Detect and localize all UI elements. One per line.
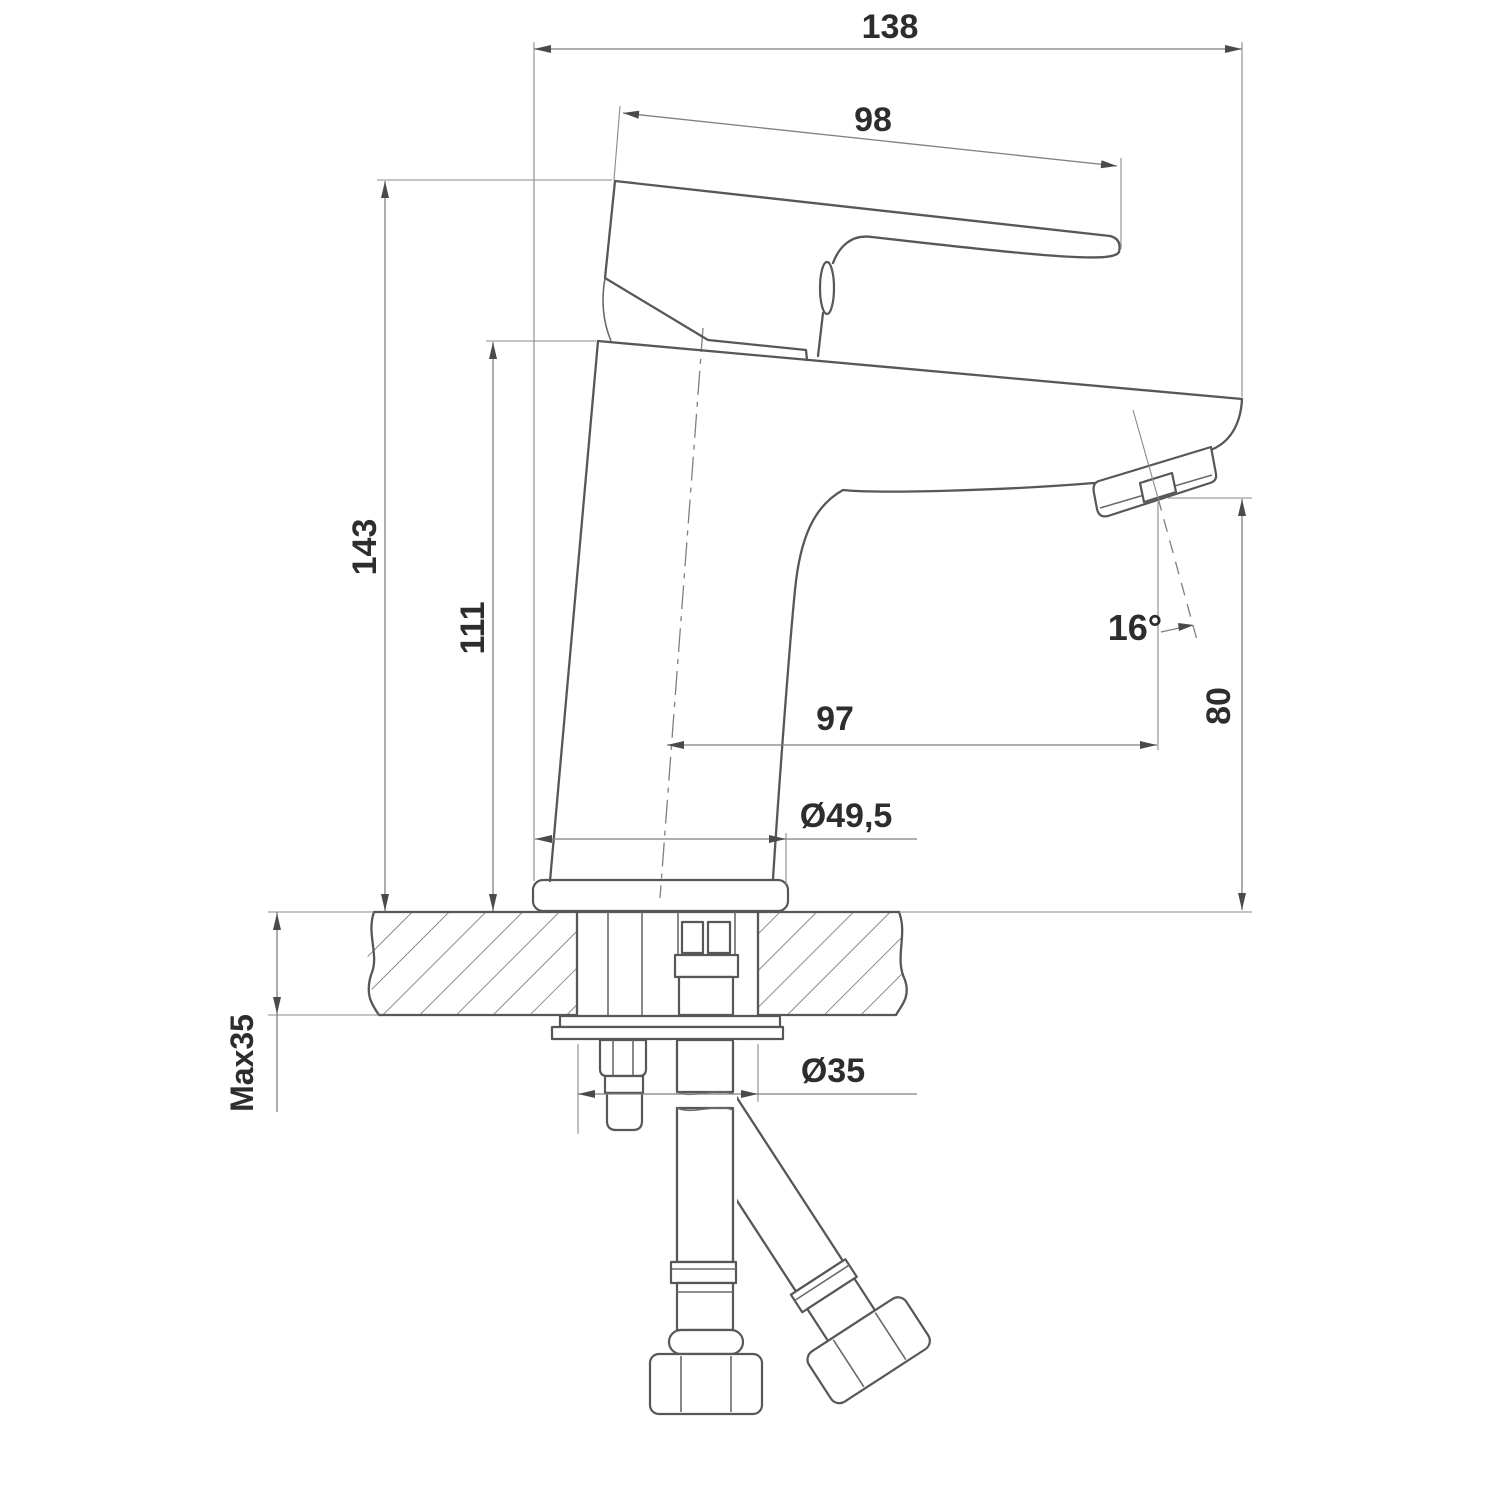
dim-98-arrow-right [1101,160,1117,168]
dim-base-diameter: Ø49,5 [535,797,917,884]
hose-vertical-nut [650,1354,762,1414]
dim-handle-length-label: 98 [854,101,892,139]
dim-spout-reach-label: 97 [816,700,854,738]
drawing-page: 138 98 143 111 [0,0,1500,1500]
handle-cap-base-arc [603,278,611,341]
connector-collar [675,955,738,977]
dim-97-arrow-left [667,741,684,749]
connector-body [679,977,733,1015]
handle-lever [615,181,1120,263]
dim-80-arrow-bottom [1238,893,1246,910]
spout-tip-edge [1213,399,1242,449]
dim-outlet-height: 80 [1168,498,1252,910]
technical-drawing-canvas: 138 98 143 111 [0,0,1500,1500]
dim-111-arrow-bottom [489,894,497,911]
dim-80-arrow-top [1238,499,1246,516]
dim-143-arrow-bottom [381,894,389,911]
hose-vertical-bulge [669,1330,743,1354]
connector-block-right [708,922,730,953]
dim-495-arrow-right [769,835,786,843]
handle-cap-left-edge [605,181,807,360]
dim-body-height-label: 111 [454,602,492,655]
dim-495-arrow-left [535,835,552,843]
washer-lower [552,1027,783,1039]
connector-block-left [682,922,703,953]
angle-arrow-head [1178,623,1194,631]
handle-neck-edge [818,313,823,356]
dim-body-height: 111 [454,341,596,911]
body-centerline [660,328,703,898]
dim-mounting-hole-label: Ø35 [801,1052,865,1090]
deck-hatch-left [368,912,577,1015]
washer-upper [560,1016,780,1027]
dim-98-arrow-left [623,111,639,119]
dim-97-arrow-right [1140,741,1157,749]
fixing-set [552,1016,783,1130]
dim-total-height: 143 [346,180,612,911]
mounting-shank [577,912,758,1016]
deck-hatch-right [758,912,907,1015]
dim-spout-reach: 97 [667,502,1158,750]
dim-max35-arrow-top [273,913,281,930]
dim-overall-width-label: 138 [862,8,919,46]
stud-collar [605,1076,643,1093]
counter-deck-section [268,912,1252,1015]
dim-138-arrow-right [1225,45,1242,53]
threaded-stud [607,1093,642,1130]
dim-deck-thickness-label: Max35 [224,1014,260,1112]
dim-outlet-height-label: 80 [1200,687,1238,725]
angle-reference-dashed [1158,498,1197,640]
dim-98-extension-left [614,106,620,180]
dim-handle-length: 98 [614,101,1121,249]
dim-35-arrow-right [741,1090,758,1098]
fixing-nut [600,1040,646,1076]
dim-111-arrow-top [489,342,497,359]
dim-35-arrow-left [578,1090,595,1098]
hose-vertical-sleeve [677,1283,733,1330]
dim-max35-arrow-bottom [273,997,281,1014]
dim-143-arrow-top [381,181,389,198]
hose-vertical-ferrule [671,1262,736,1283]
body-left-edge [550,341,598,881]
stud-tube [608,912,642,1016]
body-top-edge [598,341,1242,399]
dim-base-diameter-label: Ø49,5 [800,797,893,835]
dim-outlet-angle: 16° [1108,410,1197,648]
dim-outlet-angle-label: 16° [1108,607,1162,648]
handle-pivot-oval [820,262,834,314]
dim-138-arrow-left [534,45,551,53]
dim-deck-thickness: Max35 [224,912,281,1112]
dim-total-height-label: 143 [346,519,384,576]
